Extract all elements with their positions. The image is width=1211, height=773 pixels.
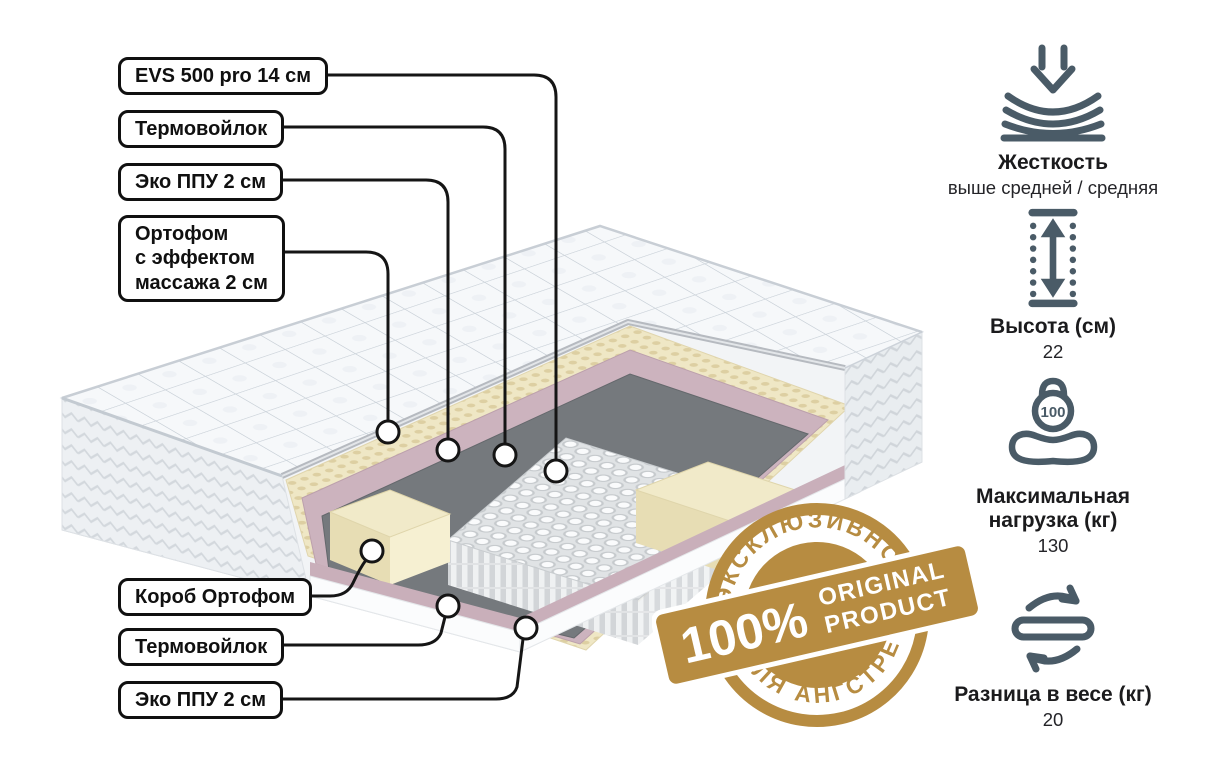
spec-block-firmness: Жесткость выше средней / средняя [942, 42, 1164, 199]
spec-title-weight-difference: Разница в весе (кг) [954, 683, 1152, 707]
label-eco-ppu-bottom: Эко ППУ 2 см [118, 681, 283, 719]
height-icon [1003, 206, 1103, 310]
label-eco-ppu-top: Эко ППУ 2 см [118, 163, 283, 201]
max-load-icon: 100 [997, 374, 1109, 480]
label-evs-500: EVS 500 pro 14 см [118, 57, 328, 95]
firmness-icon [997, 42, 1109, 146]
flip-icon [1003, 578, 1103, 678]
label-korob-ortofoam: Короб Ортофом [118, 578, 312, 616]
spec-title-height: Высота (см) [990, 315, 1116, 339]
spec-block-height: Высота (см) 22 [942, 206, 1164, 363]
original-product-badge: ЭКСКЛЮЗИВНО ДЛЯ АНГСТРЕМ 100% ORIGINAL P… [652, 482, 982, 758]
label-thermofelt-bottom: Термовойлок [118, 628, 284, 666]
spec-value-height: 22 [1043, 341, 1064, 363]
spec-value-max-load: 130 [1038, 535, 1069, 557]
spec-value-weight-difference: 20 [1043, 709, 1064, 731]
label-thermofelt-top: Термовойлок [118, 110, 284, 148]
max-load-icon-number: 100 [1040, 404, 1065, 421]
infographic-canvas: EVS 500 pro 14 см Термовойлок Эко ППУ 2 … [0, 0, 1211, 773]
label-ortofoam-massage: Ортофом с эффектом массажа 2 см [118, 215, 285, 302]
spec-value-firmness: выше средней / средняя [948, 177, 1158, 199]
spec-title-firmness: Жесткость [998, 151, 1108, 175]
